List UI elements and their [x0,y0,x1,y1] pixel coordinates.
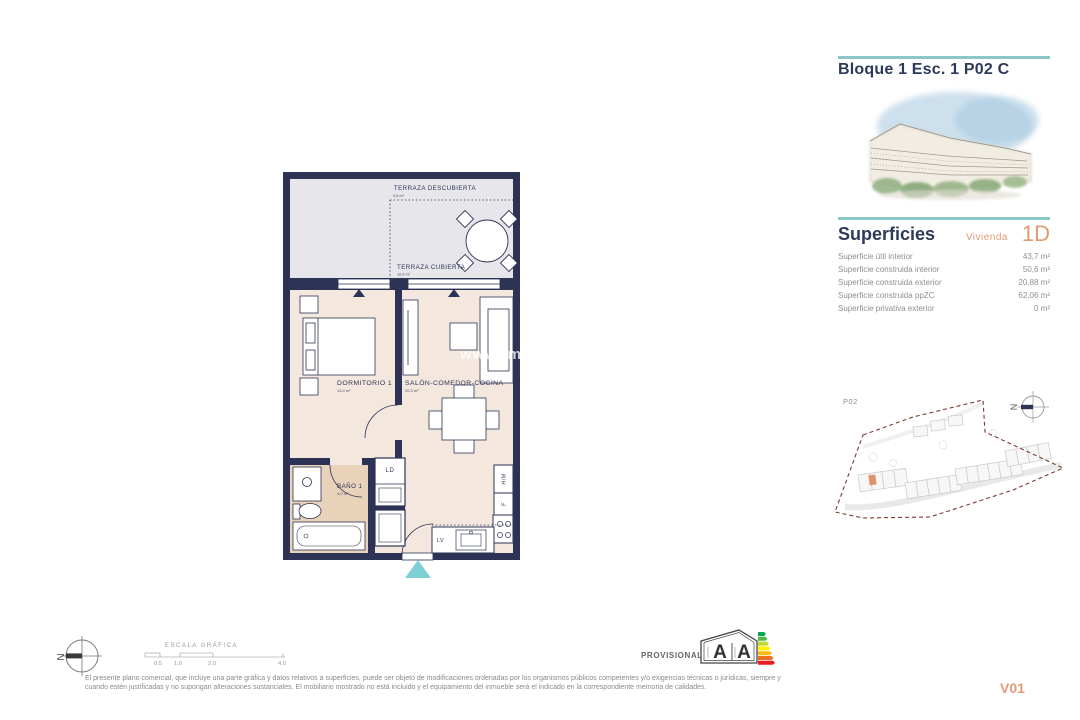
room-label-dormitorio: DORMITORIO 1 [337,380,392,387]
superficies-title: Superficies [838,224,935,245]
scale-bar: ESCALA GRÁFICA 0.5 1.0 2.0 4.0 [143,637,303,671]
label-lv: LV [437,538,444,544]
superficies-row-value: 20,88 m² [1018,276,1050,289]
room-area-salon: 20,3 m² [405,388,419,393]
footer-north-label: N [56,653,67,660]
superficies-row-label: Superficie privativa exterior [838,302,934,315]
site-north-label: N [1009,404,1019,411]
superficies-row-value: 62,06 m² [1018,289,1050,302]
room-label-terraza-descubierta: TERRAZA DESCUBIERTA [394,185,477,192]
energy-scale-bars [758,632,775,665]
superficies-row-value: 0 m² [1034,302,1050,315]
label-ld: LD [386,468,395,474]
site-plan: P02 [833,385,1068,523]
provisional-label: PROVISIONAL [641,651,703,660]
scale-tick: 1.0 [174,661,182,667]
superficies-row-label: Superficie útil interior [838,250,913,263]
scale-tick: 0.5 [154,661,162,667]
energy-certificate-icon: A A [695,625,777,667]
label-f: F [502,502,508,506]
page-title: Bloque 1 Esc. 1 P02 C [838,61,1009,79]
disclaimer-line: El presente plano comercial, que incluye… [85,675,790,684]
scale-tick: 2.0 [208,661,216,667]
vivienda-value: 1D [1012,221,1050,247]
disclaimer-line: cuando estén justificadas y no supongan … [85,684,790,693]
scale-bar-title: ESCALA GRÁFICA [165,642,238,649]
site-plan-floor-label: P02 [843,397,858,406]
version-label: V01 [1000,680,1025,696]
superficies-row-label: Superficie construida interior [838,263,939,276]
superficies-table: Superficie útil interior 43,7 m² Superfi… [838,250,1050,315]
scale-bar-line [145,653,285,657]
superficies-row: Superficie privativa exterior 0 m² [838,302,1050,315]
entry-arrow-icon [405,560,431,578]
room-label-terraza-cubierta: TERRAZA CUBIERTA [397,264,466,271]
site-highlighted-unit [868,474,876,485]
plan-sheet: TERRAZA DESCUBIERTA 9,9 m² TERRAZA CUBIE… [0,0,1080,720]
room-area-terraza-descubierta: 9,9 m² [393,194,404,198]
watermark: www.im [459,346,522,363]
site-north-compass-icon: N [1009,391,1049,423]
building-render [855,86,1045,211]
superficies-row-label: Superficie construida ppZC [838,289,935,302]
header-rule [838,56,1050,59]
footer-north-compass-icon: N [56,633,108,679]
energy-letter-left: A [713,642,727,663]
room-area-dormitorio: 13,4 m² [337,388,351,393]
superficies-row: Superficie construida exterior 20,88 m² [838,276,1050,289]
superficies-rule [838,217,1050,220]
superficies-row: Superficie útil interior 43,7 m² [838,250,1050,263]
label-hm: H/M [502,473,508,484]
scale-tick: 4.0 [278,661,286,667]
energy-letter-right: A [737,642,751,663]
superficies-row: Superficie construida ppZC 62,06 m² [838,289,1050,302]
room-label-salon: SALÓN-COMEDOR-COCINA [405,378,504,387]
vivienda-label: Vivienda [938,232,1008,243]
disclaimer: El presente plano comercial, que incluye… [85,675,790,692]
room-label-bano: BAÑO 1 [337,483,363,490]
terrace-table [457,211,518,272]
room-area-terraza-cubierta: 10,9 m² [397,273,411,277]
superficies-row: Superficie construida interior 50,6 m² [838,263,1050,276]
floor-plan-drawing: TERRAZA DESCUBIERTA 9,9 m² TERRAZA CUBIE… [280,170,525,582]
superficies-row-label: Superficie construida exterior [838,276,942,289]
superficies-row-value: 50,6 m² [1023,263,1050,276]
room-area-bano: 4,0 m² [337,491,349,496]
superficies-row-value: 43,7 m² [1023,250,1050,263]
